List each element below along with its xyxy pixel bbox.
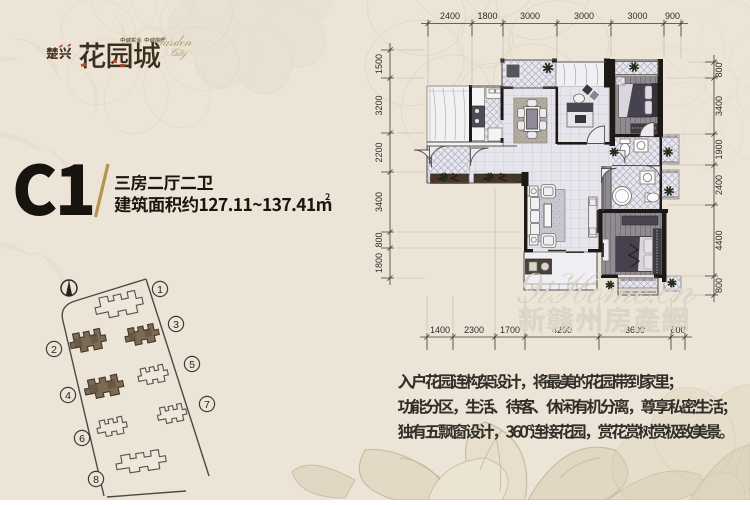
svg-text:3400: 3400 [714, 96, 724, 116]
svg-text:800: 800 [374, 232, 384, 247]
svg-text:5: 5 [189, 359, 195, 371]
svg-text:6: 6 [79, 433, 85, 445]
svg-text:1800: 1800 [374, 253, 384, 273]
svg-text:1800: 1800 [477, 11, 497, 21]
svg-text:900: 900 [665, 11, 680, 21]
svg-text:2400: 2400 [714, 175, 724, 195]
svg-text:1900: 1900 [714, 139, 724, 159]
svg-text:1400: 1400 [430, 325, 450, 335]
svg-text:800: 800 [714, 278, 724, 293]
svg-text:3000: 3000 [574, 11, 594, 21]
svg-text:7: 7 [204, 399, 210, 411]
svg-text:1700: 1700 [500, 325, 520, 335]
svg-text:4: 4 [65, 390, 71, 402]
svg-text:2300: 2300 [464, 325, 484, 335]
svg-text:2: 2 [51, 344, 57, 356]
svg-text:3: 3 [173, 319, 179, 331]
svg-text:3400: 3400 [374, 192, 384, 212]
svg-text:1500: 1500 [374, 54, 384, 74]
svg-text:1: 1 [157, 284, 163, 296]
svg-text:2400: 2400 [440, 11, 460, 21]
svg-text:4400: 4400 [714, 230, 724, 250]
svg-text:2200: 2200 [374, 142, 384, 162]
svg-text:3200: 3200 [374, 95, 384, 115]
svg-text:8: 8 [93, 474, 99, 486]
svg-text:3000: 3000 [627, 11, 647, 21]
svg-text:3000: 3000 [520, 11, 540, 21]
svg-text:800: 800 [714, 62, 724, 77]
